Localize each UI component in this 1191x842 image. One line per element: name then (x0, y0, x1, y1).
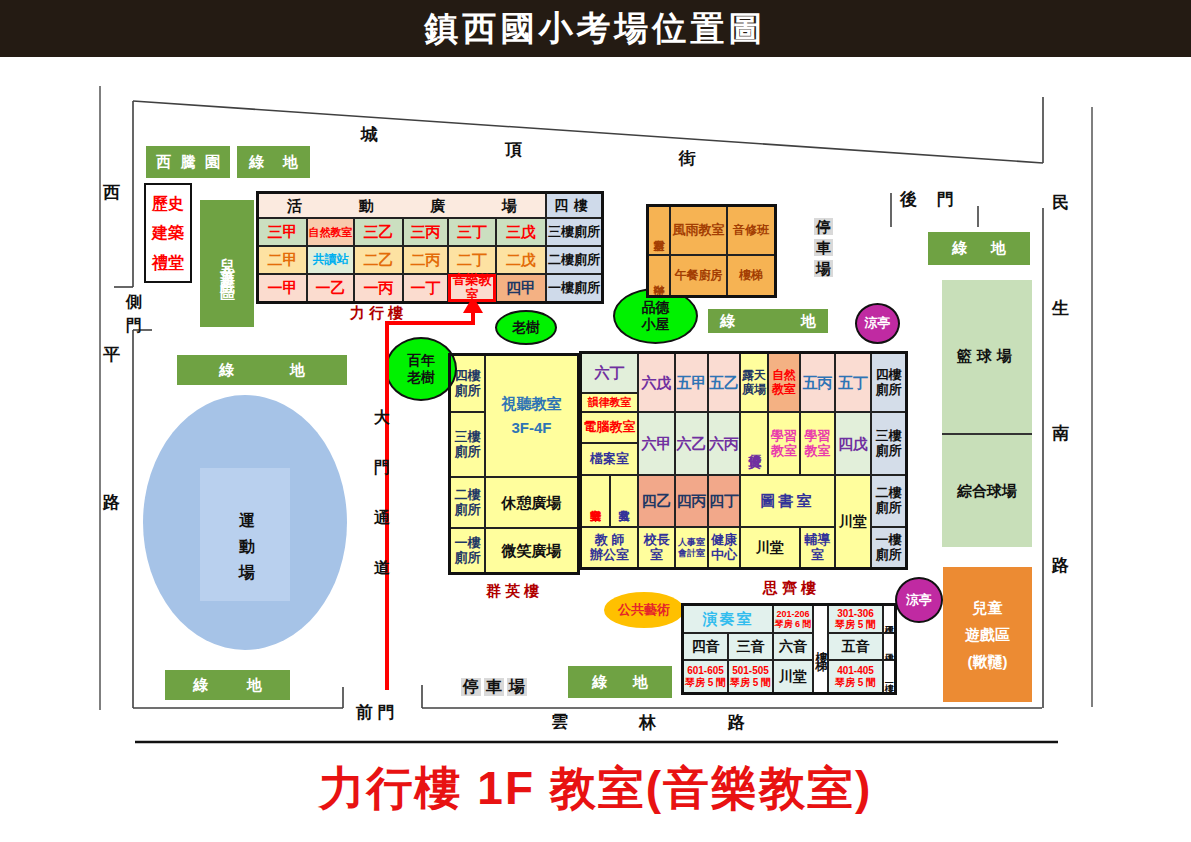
siqi-building-room: 六乙 (675, 412, 708, 475)
siqi-building-room: 一樓廁所 (871, 527, 906, 568)
green-area-backgate: 綠地 (928, 232, 1030, 265)
siqi-building-room: 健康中心 (708, 527, 740, 568)
page-title: 鎮西國小考場位置圖 (0, 0, 1191, 57)
street-xiping-2: 平 (103, 346, 120, 363)
qunying-label: 群 英 樓 (486, 583, 539, 598)
siqi-building-room: 電腦教室 (581, 412, 638, 443)
street-yunlin-2: 林 (639, 714, 656, 731)
main-path-2: 門 (374, 460, 390, 476)
side-gate-1: 側 (126, 294, 142, 310)
lixing-building-room: 一丙 (354, 274, 403, 302)
lixing-building-room: 三丙 (403, 218, 448, 246)
street-xiping-1: 西 (103, 184, 120, 201)
recital-building-room: 五音 (828, 633, 883, 660)
siqi-building-room: 圖書室 (740, 475, 835, 527)
multi-purpose-court: 綜合球場 (942, 433, 1032, 547)
main-path-1: 大 (374, 410, 390, 426)
lixing-building-room: 二丙 (403, 246, 448, 274)
siqi-building-room: 校長室 (638, 527, 675, 568)
siqi-building-room: 五乙 (708, 353, 740, 412)
recital-building-room: 三樓 (883, 605, 895, 633)
siqi-building-room: 四乙 (638, 475, 675, 527)
siqi-building-room: 川堂 (740, 527, 800, 568)
xiteng-garden: 西騰園 (146, 146, 230, 178)
campus-map: 鎮西國小考場位置圖 力行樓 1F 教室(音樂教室) 西騰園綠地歷史建築禮 (0, 0, 1191, 842)
recital-building-room: 201-206琴房 6 間 (773, 605, 813, 633)
recital-building-room: 四音 (683, 633, 728, 660)
main-path-3: 通 (374, 510, 390, 526)
equipment-building-room: 音修班 (727, 206, 775, 255)
lixing-building-room: 二乙 (354, 246, 403, 274)
children-playground-west: 兒童遊戲區 (200, 200, 254, 327)
main-path-4: 道 (374, 560, 390, 576)
siqi-building-room: 學習教室 (800, 412, 835, 475)
green-area-south: 綠地 (568, 666, 672, 698)
lixing-building-room: 二丁 (448, 246, 496, 274)
parking-north-1: 停 (814, 218, 833, 235)
parking-south-3: 場 (507, 678, 527, 696)
parking-south-2: 車 (484, 678, 504, 696)
lixing-building-room: 共讀站 (307, 246, 354, 274)
equipment-building-room: 午辦 (648, 255, 670, 296)
siqi-building-room: 六丙 (708, 412, 740, 475)
lixing-building-room: 三甲 (258, 218, 307, 246)
recital-building-room: 二樓 (883, 633, 895, 660)
recital-building-room: 301-306琴房 5 間 (828, 605, 883, 633)
parking-north-3: 場 (814, 260, 833, 277)
recital-building-room: 演奏室 (683, 605, 773, 633)
street-minsheng-4: 路 (1052, 557, 1069, 574)
equipment-building-room: 器材室 (648, 206, 670, 255)
siqi-building-room: 三樓廁所 (871, 412, 906, 475)
recital-building-room: 三音 (728, 633, 773, 660)
siqi-building-room: 學習教室 (768, 412, 800, 475)
siqi-building-room: 五甲 (675, 353, 708, 412)
children-playground-east: 兒童遊戲區(鞦韆) (943, 567, 1032, 702)
recital-building-room: 501-505琴房 5 間 (728, 660, 773, 693)
front-gate: 前 門 (356, 704, 395, 721)
sports-field-label: 運動場 (225, 470, 269, 605)
siqi-building-room: 五丙 (800, 353, 835, 412)
green-area-middle: 綠地 (708, 309, 828, 333)
recital-building-room: 川堂 (773, 660, 813, 693)
music-classroom-target: 音樂教室 (448, 274, 496, 302)
lixing-label: 力 行 樓 (350, 305, 403, 320)
siqi-building-room: 教具室 (610, 475, 638, 527)
equipment-building-room: 風雨教室 (670, 206, 727, 255)
pavilion-north: 涼亭 (855, 303, 900, 344)
siqi-building-room: 五丁 (835, 353, 871, 412)
street-chengding-1: 城 (361, 126, 378, 143)
qunying-building-room: 一樓廁所 (450, 528, 485, 573)
heritage-hall: 歷史建築禮堂 (144, 183, 192, 283)
lixing-building-room: 四樓 (546, 193, 602, 218)
siqi-building-room: 六戊 (638, 353, 675, 412)
siqi-building-room: 四丙 (675, 475, 708, 527)
street-xiping-3: 路 (103, 494, 120, 511)
equipment-building-room: 午餐廚房 (670, 255, 727, 296)
green-area-topleft: 綠地 (237, 146, 310, 178)
siqi-building-room: 四丁 (708, 475, 740, 527)
siqi-building-room: 四樓廁所 (871, 353, 906, 412)
back-gate-1: 後 (900, 191, 917, 208)
back-gate-2: 門 (937, 191, 954, 208)
siqi-building-room: 二樓廁所 (871, 475, 906, 527)
siqi-building-room: 人事室會計室 (675, 527, 708, 568)
siqi-building-room: 資優班 (740, 412, 768, 475)
lixing-building-room: 一甲 (258, 274, 307, 302)
exam-room-caption: 力行樓 1F 教室(音樂教室) (0, 758, 1191, 820)
lixing-building-room: 活動廣場 (258, 193, 546, 218)
lixing-building-room: 一丁 (403, 274, 448, 302)
siqi-building-room: 川堂 (835, 475, 871, 568)
siqi-building-room: 輔導室 (800, 527, 835, 568)
recital-building-room: 一樓 (883, 660, 895, 693)
lixing-building-room: 二戊 (496, 246, 546, 274)
public-art: 公共藝術 (604, 592, 684, 628)
green-area-southwest: 綠地 (165, 670, 290, 700)
siqi-building-room: 露天廣場 (740, 353, 768, 412)
siqi-label: 思 齊 樓 (763, 580, 816, 595)
lixing-building-room: 三丁 (448, 218, 496, 246)
recital-building-room: 六音 (773, 633, 813, 660)
street-minsheng-3: 南 (1052, 425, 1069, 442)
qunying-building-room: 視聽教室3F-4F (485, 355, 578, 477)
qunying-building-room: 微笑廣場 (485, 528, 578, 573)
street-yunlin-1: 雲 (551, 713, 568, 730)
lixing-building-room: 自然教室 (307, 218, 354, 246)
street-chengding-3: 街 (679, 150, 696, 167)
lixing-building-room: 四甲 (496, 274, 546, 302)
equipment-building-room: 樓梯 (727, 255, 775, 296)
street-minsheng-2: 生 (1052, 300, 1069, 317)
siqi-building-room: 檔案室 (581, 443, 638, 475)
qunying-building-room: 休憩廣場 (485, 477, 578, 528)
qunying-building-room: 二樓廁所 (450, 477, 485, 528)
siqi-building-room: 自然教室 (768, 353, 800, 412)
siqi-building-room: 六丁 (581, 353, 638, 393)
street-yunlin-3: 路 (728, 714, 745, 731)
side-gate-2: 門 (126, 318, 142, 334)
recital-building-room: 樓梯 (813, 605, 828, 693)
lixing-building-room: 三戊 (496, 218, 546, 246)
lixing-building-room: 三乙 (354, 218, 403, 246)
lixing-building-room: 三樓廁所 (546, 218, 602, 246)
siqi-building-room: 四戊 (835, 412, 871, 475)
street-chengding-2: 頂 (505, 141, 522, 158)
parking-north-2: 車 (814, 239, 833, 256)
lixing-building-room: 一乙 (307, 274, 354, 302)
lixing-building-room: 二甲 (258, 246, 307, 274)
green-area-west: 綠地 (177, 355, 347, 385)
basketball-court: 籃球場 (942, 280, 1032, 433)
siqi-building-room: 教 師辦公室 (581, 527, 638, 568)
pinde-cabin: 品德小屋 (613, 288, 698, 344)
siqi-building-room: 音樂教室 (581, 475, 610, 527)
siqi-building-room: 六甲 (638, 412, 675, 475)
siqi-building-room: 韻律教室 (581, 393, 638, 412)
recital-building-room: 601-605琴房 5 間 (683, 660, 728, 693)
qunying-building-room: 三樓廁所 (450, 412, 485, 477)
lixing-building-room: 一樓廁所 (546, 274, 602, 302)
lixing-building-room: 二樓廁所 (546, 246, 602, 274)
centennial-tree: 百年老樹 (385, 337, 457, 401)
parking-south-1: 停 (461, 678, 481, 696)
street-minsheng-1: 民 (1052, 194, 1069, 211)
old-tree: 老樹 (495, 310, 557, 345)
recital-building-room: 401-405琴房 5 間 (828, 660, 883, 693)
pavilion-south: 涼亭 (895, 577, 943, 623)
